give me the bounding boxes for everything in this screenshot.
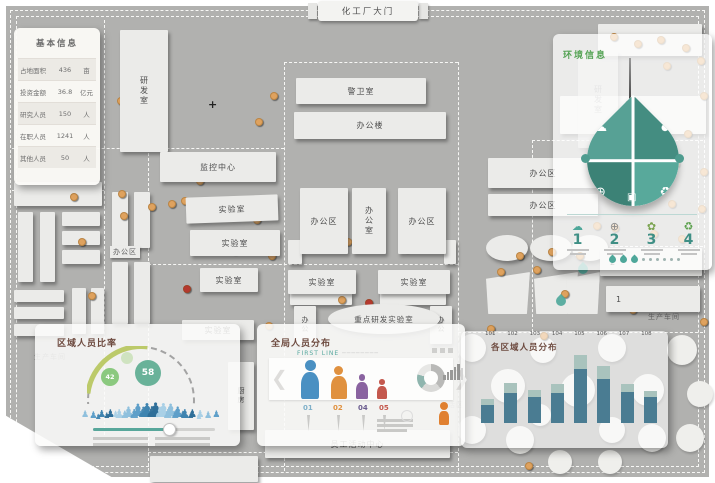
- area-distribution-panel: 各区域人员分布 101102103104105106107108: [461, 331, 668, 448]
- bar-106: [597, 366, 610, 423]
- environment-steps: ☁1⊕2✿3♻4: [559, 220, 707, 255]
- bar-main: [481, 405, 494, 423]
- text-line: [155, 443, 210, 446]
- drop-side-knob: [675, 154, 684, 163]
- tree-circle: [687, 381, 713, 407]
- building-label: 实验室: [218, 203, 245, 215]
- basic-info-row: 其他人员50人: [18, 146, 96, 168]
- basic-info-label: 占地面积: [18, 65, 53, 75]
- step-caption-line: [570, 253, 586, 255]
- bar-x-label: 105: [574, 331, 585, 337]
- bar-cap: [528, 390, 541, 397]
- basic-info-value: 1241: [53, 132, 77, 140]
- crowd-person-icon: ♟: [95, 413, 101, 420]
- gift-icon: ▣: [627, 192, 636, 203]
- orange-person-icon: [439, 411, 449, 425]
- basic-info-unit: 亩: [77, 65, 96, 75]
- building-office-area-left[interactable]: 办公区: [300, 188, 348, 254]
- step-caption-line: [681, 253, 697, 255]
- basic-info-row: 研究人员150人: [18, 102, 96, 124]
- building-guard-room[interactable]: 警卫室: [296, 78, 426, 104]
- building-slanted: [566, 272, 600, 314]
- building: [134, 262, 150, 324]
- factory-gate[interactable]: 化工厂大门: [318, 1, 418, 21]
- environment-step: ☁1: [559, 220, 596, 255]
- basic-info-row: 投资金额36.8亿元: [18, 80, 96, 102]
- step-number: 1: [573, 233, 583, 247]
- person-marker-orange: [338, 296, 346, 304]
- bar-main: [528, 397, 541, 423]
- building: [112, 262, 128, 324]
- step-caption-line: [644, 253, 660, 255]
- pin-icon: [337, 415, 340, 431]
- cursor-icon: +: [208, 98, 217, 111]
- orange-person-icon: [440, 402, 448, 410]
- building: [62, 212, 100, 226]
- building-label: 警卫室: [348, 86, 375, 97]
- building-monitor-center[interactable]: 监控中心: [160, 152, 276, 182]
- building-label: 实验室: [401, 277, 428, 288]
- bar-cap: [504, 383, 517, 393]
- mini-bar: [457, 364, 460, 380]
- step-number: 3: [647, 233, 657, 247]
- target-circle-icon: [401, 410, 413, 422]
- building: [112, 192, 128, 248]
- panel-mini-icons: [432, 348, 453, 353]
- person-marker-orange: [255, 118, 263, 126]
- basic-info-title: 基本信息: [14, 37, 100, 49]
- bar-main: [504, 393, 517, 423]
- environment-step: ✿3: [633, 220, 670, 255]
- pin-icon: [307, 415, 310, 431]
- tree-circle: [667, 335, 697, 365]
- building-label: 实验室: [309, 277, 336, 288]
- text-line: [93, 437, 148, 440]
- raindrop-icon: [619, 255, 629, 265]
- label-production-workshop: 生产车间: [648, 312, 680, 322]
- person-marker-orange: [700, 318, 708, 326]
- bar-x-label: 104: [552, 331, 563, 337]
- gauge-bubble-tiny: [121, 352, 133, 364]
- global-distribution-panel: 全局人员分布 FIRST LINE ──────── ❮ ❯ 01020405: [257, 324, 465, 446]
- building: [62, 250, 100, 264]
- building-lab-6[interactable]: 实验室: [378, 270, 450, 294]
- raindrop-icon: [608, 255, 618, 265]
- person-marker-orange: [525, 462, 533, 470]
- bar-main: [644, 397, 657, 423]
- mini-bar-chart: [443, 362, 463, 380]
- area-distribution-title: 各区域人员分布: [491, 341, 558, 353]
- bar-x-label: 107: [619, 331, 630, 337]
- bar-x-label: 102: [507, 331, 518, 337]
- drop-side-knob: [581, 154, 590, 163]
- region-ratio-panel: 区域人员比率 42 58 ♟♟♟♟♟♟♟♟♟♟♟♟♟♟♟♟♟♟♟♟♟♟♟♟♟♟♟…: [35, 324, 240, 446]
- basic-info-label: 在职人员: [18, 131, 53, 141]
- building-label: 办公区: [311, 216, 338, 227]
- bar-107: [621, 384, 634, 423]
- person-figure: [301, 360, 319, 400]
- environment-title: 环境信息: [563, 48, 607, 61]
- basic-info-label: 投资金额: [18, 87, 53, 97]
- crowd-person-icon: ♟: [112, 411, 120, 420]
- bar-chart: [481, 355, 657, 423]
- basic-info-value: 150: [53, 110, 77, 118]
- crowd-person-icon: ♟: [179, 411, 187, 420]
- person-marker-orange: [118, 190, 126, 198]
- building-label: 1: [616, 295, 622, 304]
- environment-footer-icons: [609, 256, 680, 263]
- crowd-chart: ♟♟♟♟♟♟♟♟♟♟♟♟♟♟♟♟♟♟♟♟♟♟♟♟♟♟♟♟♟♟: [81, 372, 221, 420]
- bar-cap: [574, 355, 587, 369]
- environment-step: ♻4: [670, 220, 707, 255]
- step-caption-line: [678, 249, 700, 251]
- building-lab-1[interactable]: 实验室: [186, 194, 279, 223]
- person-body: [356, 382, 368, 399]
- figure-label: 01: [303, 404, 313, 412]
- gate-label: 化工厂大门: [342, 5, 395, 17]
- building-lab-5[interactable]: 实验室: [288, 270, 356, 294]
- bar-x-label: 106: [597, 331, 608, 337]
- basic-info-unit: 人: [77, 109, 96, 119]
- bar-103: [528, 390, 541, 423]
- bar-101: [481, 399, 494, 423]
- bar-x-label: 103: [530, 331, 541, 337]
- text-line: [377, 424, 413, 427]
- crowd-person-icon: ♟: [187, 412, 194, 420]
- person-marker-orange: [120, 212, 128, 220]
- raindrop-icon: [634, 97, 696, 159]
- crowd-person-icon: ♟: [204, 411, 212, 420]
- mini-bar: [443, 375, 446, 380]
- building: [18, 212, 33, 282]
- global-distribution-title: 全局人员分布: [271, 336, 331, 349]
- crowd-person-icon: ♟: [196, 413, 202, 420]
- gate-pillar: [419, 3, 428, 19]
- person-figure: [356, 374, 368, 400]
- figure-label: 02: [333, 404, 343, 412]
- basic-info-panel: 基本信息 占地面积436亩投资金额36.8亿元研究人员150人在职人员1241人…: [14, 28, 100, 185]
- building: [14, 182, 102, 206]
- road: [284, 62, 458, 63]
- bar-main: [597, 379, 610, 423]
- text-line: [155, 437, 210, 440]
- figure-label: 04: [358, 404, 368, 412]
- person-marker-orange: [533, 266, 541, 274]
- person-head: [305, 360, 316, 371]
- building-lab-3[interactable]: 实验室: [200, 268, 258, 292]
- mini-bar: [454, 367, 457, 380]
- person-head: [334, 366, 343, 375]
- crowd-person-icon: ♟: [212, 411, 220, 420]
- person-marker-orange: [88, 292, 96, 300]
- building: [14, 290, 64, 302]
- person-marker-orange: [270, 92, 278, 100]
- basic-info-label: 研究人员: [18, 109, 53, 119]
- factory-map-dashboard: 研发室 警卫室 办公楼 监控中心 实验室 实验室 实验室 实验室 办公区 办公室…: [0, 0, 715, 483]
- gate-pillar: [308, 3, 317, 19]
- bar-102: [504, 383, 517, 423]
- building-label: 研发室: [139, 76, 150, 106]
- basic-info-table: 占地面积436亩投资金额36.8亿元研究人员150人在职人员1241人其他人员5…: [18, 58, 96, 168]
- bar-main: [621, 392, 634, 423]
- building-label: 实验室: [216, 275, 243, 286]
- raindrop-icon: [630, 255, 640, 265]
- person-figure: [377, 379, 387, 400]
- person-marker-orange: [148, 203, 156, 211]
- person-figure: [331, 366, 347, 400]
- donut-chart: [417, 364, 445, 392]
- step-caption-line: [641, 249, 663, 251]
- environment-step: ⊕2: [596, 220, 633, 255]
- basic-info-unit: 人: [77, 131, 96, 141]
- basic-info-value: 50: [53, 154, 77, 162]
- person-body: [331, 376, 347, 399]
- step-number: 2: [610, 233, 620, 247]
- tree-circle: [676, 424, 704, 452]
- bar-main: [574, 369, 587, 423]
- step-caption-line: [607, 253, 623, 255]
- building-label: 办公区: [409, 216, 436, 227]
- building-label: 重点研发实验室: [354, 314, 414, 325]
- bar-105: [574, 355, 587, 423]
- text-line: [377, 429, 407, 432]
- person-marker-orange: [78, 238, 86, 246]
- person-marker-red: [183, 285, 191, 293]
- chevron-left-icon[interactable]: ❮: [271, 366, 288, 390]
- person-head: [359, 374, 366, 381]
- bar-x-label: 108: [641, 331, 652, 337]
- environment-panel: 环境信息 ☁ ⊕ ♻ ▣ ☁1⊕2✿3♻4: [553, 34, 712, 270]
- person-marker-orange: [168, 200, 176, 208]
- building-slanted: [486, 272, 530, 314]
- slider-knob[interactable]: [163, 423, 176, 436]
- basic-info-row: 占地面积436亩: [18, 58, 96, 80]
- bar-cap: [621, 384, 634, 392]
- basic-info-unit: 亿元: [77, 87, 96, 97]
- figure-label: 05: [379, 404, 389, 412]
- crowd-person-icon: ♟: [81, 411, 89, 420]
- building-label: 办公室: [364, 206, 375, 236]
- tree-circle: [598, 450, 622, 474]
- building-lab-2[interactable]: 实验室: [190, 230, 280, 256]
- person-marker-orange: [497, 268, 505, 276]
- person-body: [377, 386, 387, 399]
- step-number: 4: [684, 233, 694, 247]
- bar-108: [644, 391, 657, 423]
- building-label: 监控中心: [200, 162, 236, 173]
- building-south-strip[interactable]: [150, 456, 258, 482]
- building-label: 办公楼: [357, 120, 384, 131]
- building-rd-room[interactable]: 研发室: [120, 30, 168, 152]
- mini-bar: [450, 370, 453, 380]
- label-office-area-west: 办公区: [110, 246, 140, 258]
- tree-circle: [548, 450, 572, 474]
- bar-x-label: 101: [485, 331, 496, 337]
- basic-info-value: 436: [53, 66, 77, 74]
- building-office-area-right[interactable]: 办公区: [398, 188, 446, 254]
- person-head: [379, 379, 385, 385]
- mini-bar: [447, 372, 450, 380]
- global-subtitle: FIRST LINE ────────: [297, 350, 379, 357]
- basic-info-label: 其他人员: [18, 153, 53, 163]
- step-caption-line: [604, 249, 626, 251]
- basic-info-value: 36.8: [53, 88, 77, 96]
- building: [134, 192, 150, 248]
- bar-cap: [597, 366, 610, 379]
- bar-cap: [551, 384, 564, 393]
- slider-track[interactable]: [93, 428, 215, 431]
- bar-main: [551, 393, 564, 423]
- person-body: [301, 372, 319, 399]
- building-no1[interactable]: 1: [606, 286, 700, 312]
- building-office-building[interactable]: 办公楼: [294, 112, 446, 139]
- basic-info-row: 在职人员1241人: [18, 124, 96, 146]
- crowd-person-icon: ♟: [103, 412, 110, 420]
- pin-icon: [362, 415, 365, 431]
- building: [40, 212, 55, 282]
- step-caption-line: [567, 249, 589, 251]
- basic-info-unit: 人: [77, 153, 96, 163]
- building: [14, 307, 64, 319]
- person-marker-orange: [516, 252, 524, 260]
- building-label: 实验室: [222, 238, 249, 249]
- road: [148, 264, 458, 265]
- person-marker-orange: [70, 193, 78, 201]
- building-office-room[interactable]: 办公室: [352, 188, 386, 254]
- divider: [567, 214, 697, 215]
- bar-104: [551, 384, 564, 423]
- text-line: [93, 443, 148, 446]
- cloud-icon: ☁: [570, 97, 632, 159]
